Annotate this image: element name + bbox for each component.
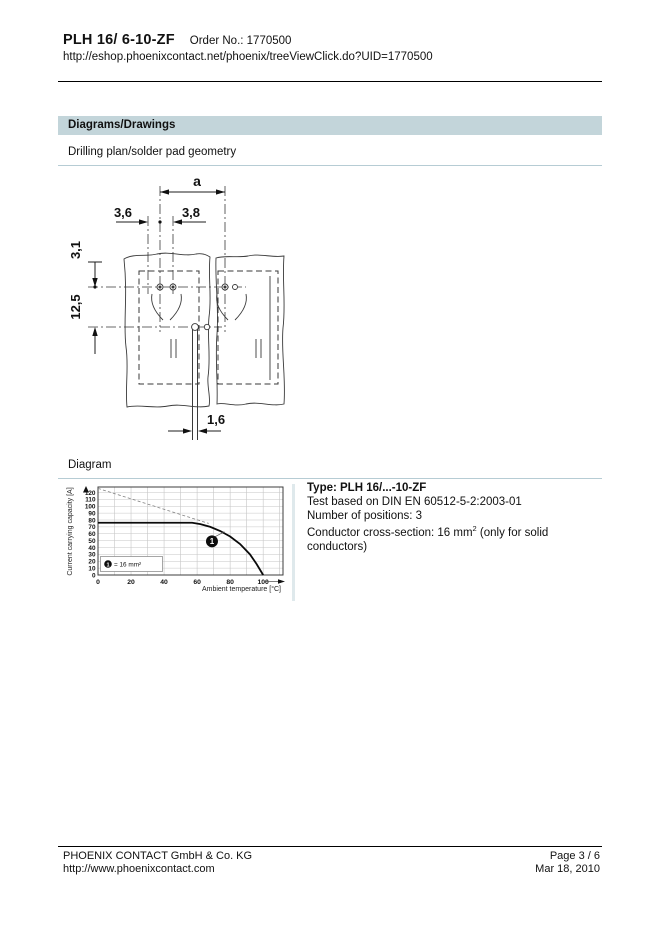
svg-text:0: 0 xyxy=(96,579,100,586)
dimension-3-6: 3,6 xyxy=(114,205,162,225)
dimension-12-5: 12,5 xyxy=(68,285,98,354)
footer-right: Page 3 / 6 Mar 18, 2010 xyxy=(535,850,600,876)
svg-text:50: 50 xyxy=(88,538,96,545)
subheading-drilling-plan: Drilling plan/solder pad geometry xyxy=(58,146,602,166)
dimension-a: a xyxy=(160,173,225,195)
datasheet-page: PLH 16/ 6-10-ZF Order No.: 1770500 http:… xyxy=(0,0,662,936)
subheading-drilling-plan-label: Drilling plan/solder pad geometry xyxy=(68,146,236,158)
svg-text:30: 30 xyxy=(88,552,96,559)
svg-text:20: 20 xyxy=(127,579,135,586)
svg-text:100: 100 xyxy=(258,579,270,586)
dimension-3-1: 3,1 xyxy=(68,241,102,287)
page-title: PLH 16/ 6-10-ZF xyxy=(63,32,175,48)
chart-x-axis-label: Ambient temperature [°C] xyxy=(180,586,281,593)
dimension-label-3-6: 3,6 xyxy=(114,205,132,220)
svg-text:1: 1 xyxy=(106,562,109,568)
footer-website-link[interactable]: http://www.phoenixcontact.com xyxy=(63,863,252,876)
header-divider xyxy=(58,81,602,82)
svg-text:110: 110 xyxy=(85,497,96,504)
svg-text:60: 60 xyxy=(88,531,96,538)
info-type: Type: PLH 16/...-10-ZF xyxy=(307,481,600,495)
svg-text:90: 90 xyxy=(88,510,96,517)
svg-text:20: 20 xyxy=(88,559,96,566)
svg-text:40: 40 xyxy=(160,579,168,586)
dimension-label-1-6: 1,6 xyxy=(207,412,225,427)
footer-divider xyxy=(58,846,602,847)
dimension-label-3-8: 3,8 xyxy=(182,205,200,220)
svg-text:1: 1 xyxy=(210,537,215,546)
svg-text:40: 40 xyxy=(88,545,96,552)
derating-chart-canvas: 0102030405060708090100110120020406080100… xyxy=(62,484,292,601)
dimension-label-a: a xyxy=(193,173,201,189)
info-test-standard: Test based on DIN EN 60512-5-2:2003-01 xyxy=(307,495,600,509)
dimension-label-3-1: 3,1 xyxy=(68,241,83,259)
diagram-info-block: Type: PLH 16/...-10-ZF Test based on DIN… xyxy=(307,481,600,554)
section-header-diagrams-drawings: Diagrams/Drawings xyxy=(58,116,602,135)
svg-text:60: 60 xyxy=(193,579,201,586)
footer-date: Mar 18, 2010 xyxy=(535,863,600,876)
footer-company: PHOENIX CONTACT GmbH & Co. KG xyxy=(63,850,252,863)
svg-text:70: 70 xyxy=(88,524,96,531)
footer-left: PHOENIX CONTACT GmbH & Co. KG http://www… xyxy=(63,850,252,876)
svg-text:100: 100 xyxy=(85,504,96,511)
dimension-label-12-5: 12,5 xyxy=(68,294,83,319)
chart-y-axis-label: Current carrying capacity [A] xyxy=(66,474,75,589)
subheading-diagram: Diagram xyxy=(58,459,602,479)
info-conductor-text: Conductor cross-section: 16 mm xyxy=(307,527,473,539)
derating-chart: 0102030405060708090100110120020406080100… xyxy=(62,484,295,601)
product-url-link[interactable]: http://eshop.phoenixcontact.net/phoenix/… xyxy=(63,51,433,63)
info-number-of-positions: Number of positions: 3 xyxy=(307,509,600,523)
order-number: Order No.: 1770500 xyxy=(190,35,292,47)
info-conductor-cross-section: Conductor cross-section: 16 mm2 (only fo… xyxy=(307,526,600,554)
subheading-diagram-label: Diagram xyxy=(68,459,111,471)
pcb-panel-right xyxy=(216,255,285,405)
section-header-label: Diagrams/Drawings xyxy=(58,119,175,131)
page-header: PLH 16/ 6-10-ZF Order No.: 1770500 xyxy=(63,32,291,48)
dimension-1-6: 1,6 xyxy=(168,412,225,434)
drilling-plan-drawing: a 3,6 3,8 3,1 12,5 xyxy=(60,172,300,450)
svg-text:10: 10 xyxy=(88,565,96,572)
svg-text:80: 80 xyxy=(226,579,234,586)
svg-text:= 16 mm²: = 16 mm² xyxy=(114,562,141,569)
footer-page-number: Page 3 / 6 xyxy=(535,850,600,863)
svg-text:80: 80 xyxy=(88,517,96,524)
dimension-3-8: 3,8 xyxy=(173,205,206,225)
